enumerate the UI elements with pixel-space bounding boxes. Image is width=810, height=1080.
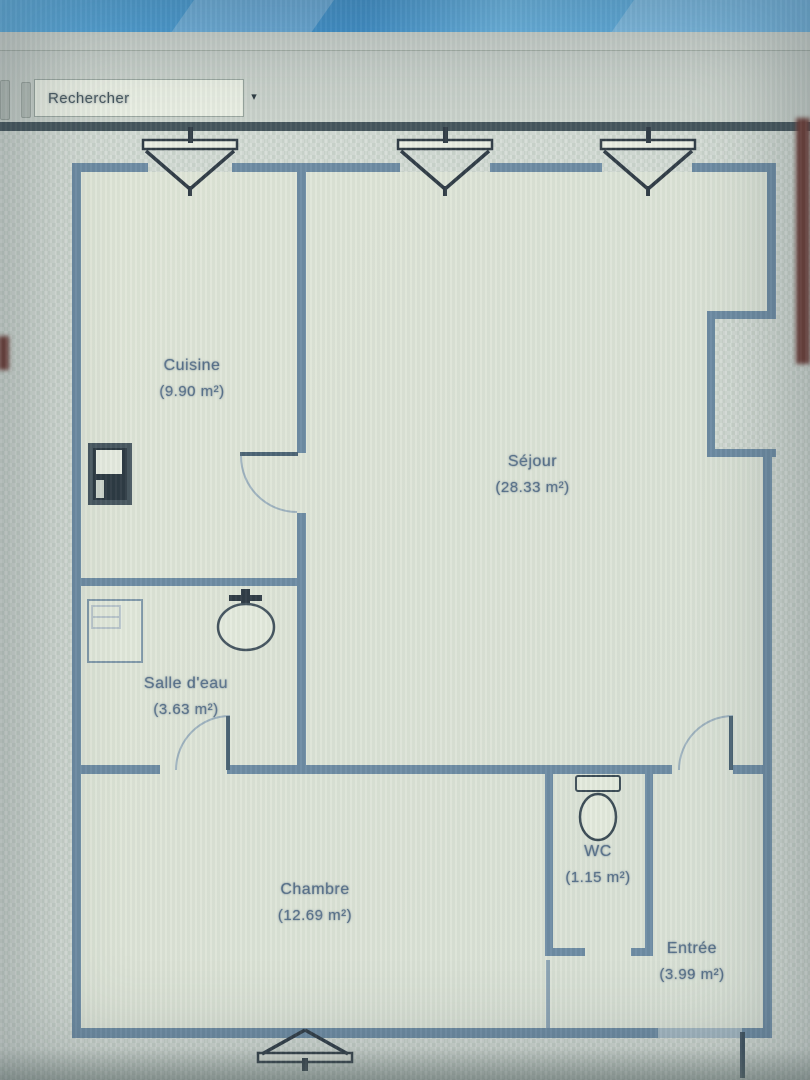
photo-artifact <box>796 118 810 364</box>
fixtures <box>88 443 620 840</box>
room-label-sejour[interactable]: Séjour (28.33 m²) <box>450 448 615 501</box>
wall-wc-stub-left <box>545 948 585 956</box>
window-symbols <box>143 127 695 1071</box>
room-name: Salle d'eau <box>106 670 266 697</box>
toilet-icon[interactable] <box>576 776 620 840</box>
room-name: Chambre <box>235 876 395 903</box>
window-icon[interactable] <box>601 127 695 196</box>
wall-kitchen-bottom <box>72 578 305 586</box>
wall-kitchen-lower <box>297 513 306 770</box>
room-name: Entrée <box>612 935 772 962</box>
stove-icon[interactable] <box>88 443 132 505</box>
living-room-door-leaf[interactable] <box>729 716 733 770</box>
entry-door-opening[interactable] <box>658 1028 742 1038</box>
room-area: (28.33 m²) <box>450 475 615 501</box>
wall-kitchen-upper <box>297 163 306 453</box>
chambre-door-leaf[interactable] <box>546 960 550 1028</box>
room-area: (3.99 m²) <box>612 962 772 988</box>
room-area: (12.69 m²) <box>235 903 395 929</box>
photo-artifact <box>0 336 9 370</box>
wall-mid-right <box>733 765 772 774</box>
room-area: (1.15 m²) <box>548 865 648 891</box>
window-icon[interactable] <box>398 127 492 196</box>
kitchen-door-leaf[interactable] <box>240 452 298 456</box>
room-name: Cuisine <box>112 352 272 379</box>
room-label-cuisine[interactable]: Cuisine (9.90 m²) <box>112 352 272 405</box>
wall-mid-center <box>227 765 672 774</box>
floorplan-drawing <box>0 0 810 1080</box>
room-label-chambre[interactable]: Chambre (12.69 m²) <box>235 876 395 929</box>
room-label-salle-eau[interactable]: Salle d'eau (3.63 m²) <box>106 670 266 723</box>
room-label-wc[interactable]: WC (1.15 m²) <box>548 838 648 891</box>
window-icon[interactable] <box>143 127 237 196</box>
room-area: (9.90 m²) <box>112 379 272 405</box>
wall-right-upper <box>767 163 776 318</box>
wall-notch-side <box>707 311 715 456</box>
room-name: Séjour <box>450 448 615 475</box>
washbasin-icon[interactable] <box>218 589 274 650</box>
shower-tray-icon[interactable] <box>88 600 142 662</box>
room-label-entree[interactable]: Entrée (3.99 m²) <box>612 935 772 988</box>
wall-top <box>692 163 776 172</box>
walls <box>72 163 776 1038</box>
room-area: (3.63 m²) <box>106 697 266 723</box>
wall-notch-top <box>707 311 776 319</box>
entry-door-leaf[interactable] <box>740 1032 745 1078</box>
room-name: WC <box>548 838 648 865</box>
wall-top <box>72 163 148 172</box>
wall-top <box>490 163 602 172</box>
bathroom-door-leaf[interactable] <box>226 716 230 770</box>
wall-top <box>232 163 400 172</box>
wall-mid-left <box>72 765 160 774</box>
wall-left <box>72 163 81 1038</box>
